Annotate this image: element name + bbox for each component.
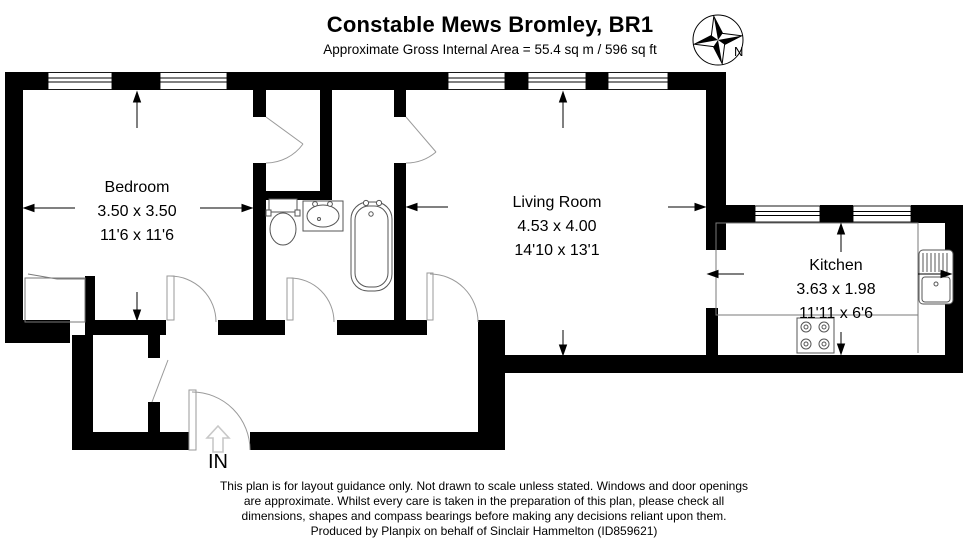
- room-dims-metric: 4.53 x 4.00: [513, 215, 602, 239]
- room-dims-imperial: 14'10 x 13'1: [513, 239, 602, 263]
- dimension-arrow-bedroom-down: [134, 292, 141, 320]
- room-dims-imperial: 11'6 x 11'6: [97, 224, 176, 248]
- window: [608, 73, 668, 90]
- window: [448, 73, 505, 90]
- room-name: Bedroom: [97, 176, 176, 200]
- toilet: [266, 199, 300, 245]
- window: [160, 73, 227, 90]
- kitchen-label: Kitchen 3.63 x 1.98 11'11 x 6'6: [796, 254, 875, 326]
- floorplan-page: Constable Mews Bromley, BR1 Approximate …: [0, 0, 980, 547]
- dimension-arrow-living-up: [560, 92, 567, 128]
- disclaimer-line: Produced by Planpix on behalf of Sinclai…: [0, 524, 968, 539]
- living-room-label: Living Room 4.53 x 4.00 14'10 x 13'1: [513, 191, 602, 263]
- dimension-arrow-bedroom-up: [134, 92, 141, 128]
- entrance-label: IN: [208, 451, 228, 474]
- dimension-arrow-kitchen-down: [838, 332, 845, 354]
- bathtub: [351, 200, 392, 291]
- kitchen-sink: [919, 250, 953, 304]
- room-name: Living Room: [513, 191, 602, 215]
- window: [755, 206, 820, 222]
- disclaimer-line: are approximate. Whilst every care is ta…: [0, 494, 968, 509]
- bedroom-closet-door: [266, 117, 303, 163]
- bathroom-door: [287, 278, 334, 322]
- footer-disclaimer: This plan is for layout guidance only. N…: [0, 479, 968, 539]
- dimension-arrow-kitchen-up: [838, 224, 845, 252]
- entrance-arrow-icon: [207, 426, 229, 452]
- compass-label: N: [734, 44, 743, 59]
- window: [853, 206, 911, 222]
- doors-layer: [152, 117, 478, 450]
- dimension-arrow-bedroom-left: [24, 205, 75, 212]
- disclaimer-line: This plan is for layout guidance only. N…: [0, 479, 968, 494]
- dimension-arrow-bedroom-right: [200, 205, 252, 212]
- bedroom-label: Bedroom 3.50 x 3.50 11'6 x 11'6: [97, 176, 176, 248]
- dimension-arrow-living-down: [560, 330, 567, 355]
- sink: [303, 201, 343, 231]
- living-room-door: [427, 273, 478, 322]
- bedroom-door: [167, 276, 216, 322]
- window: [48, 73, 112, 90]
- room-dims-metric: 3.50 x 3.50: [97, 200, 176, 224]
- hall-cupboard-door: [152, 360, 168, 402]
- dimension-arrow-living-left: [407, 204, 448, 211]
- room-dims-metric: 3.63 x 1.98: [796, 278, 875, 302]
- window: [528, 73, 586, 90]
- dimension-arrow-kitchen-left: [708, 271, 744, 278]
- windows-layer: [48, 73, 911, 223]
- room-dims-imperial: 11'11 x 6'6: [796, 302, 875, 326]
- closet: [25, 274, 85, 322]
- dimension-arrow-living-right: [668, 204, 705, 211]
- room-name: Kitchen: [796, 254, 875, 278]
- living-closet-door: [406, 117, 436, 163]
- disclaimer-line: dimensions, shapes and compass bearings …: [0, 509, 968, 524]
